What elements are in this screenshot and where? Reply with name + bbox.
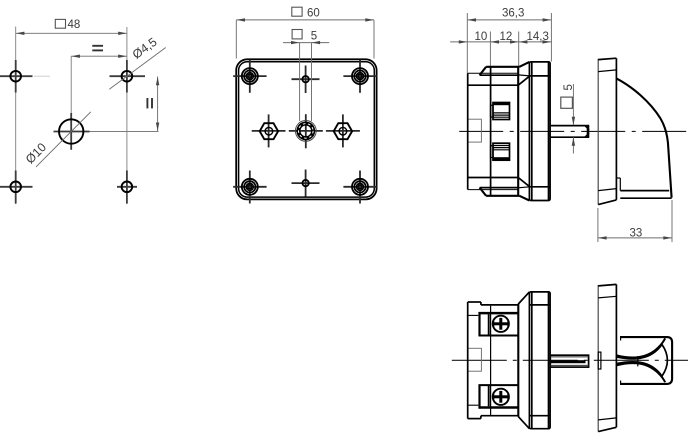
svg-text:12: 12 [500,31,513,43]
svg-text:36,3: 36,3 [502,8,524,20]
svg-text:60: 60 [307,7,320,19]
svg-text:48: 48 [68,19,81,31]
svg-text:10: 10 [475,31,488,43]
svg-text:33: 33 [630,228,643,240]
svg-text:14,3: 14,3 [527,31,549,43]
svg-text:5: 5 [563,84,575,90]
svg-text:5: 5 [311,31,317,43]
